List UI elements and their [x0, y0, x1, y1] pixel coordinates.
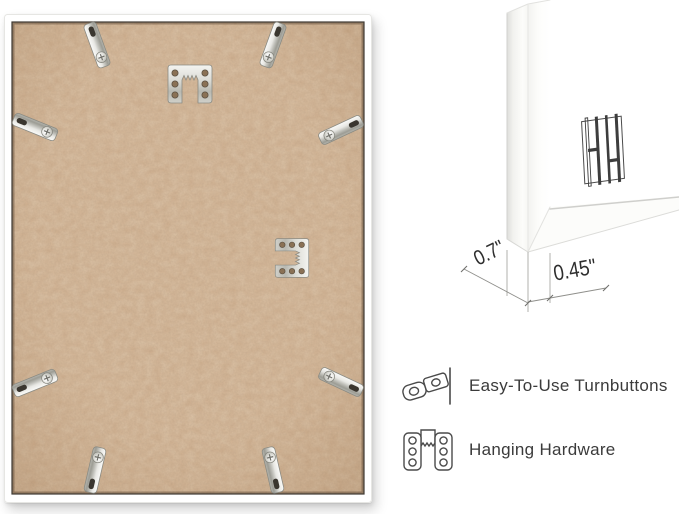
frame-back-svg	[4, 14, 372, 503]
product-image: 0.7" 0.45" Easy-To-Use Turnbuttons	[0, 0, 679, 514]
feature-hanging-hardware: Hanging Hardware	[400, 426, 616, 474]
mdf-board	[12, 22, 364, 494]
face-dimension-label: 0.45"	[552, 255, 598, 286]
frame-back-photo	[4, 14, 372, 503]
depth-dimension-label: 0.7"	[470, 236, 508, 271]
feature-turnbuttons: Easy-To-Use Turnbuttons	[400, 362, 668, 410]
turnbutton-icon	[400, 362, 456, 410]
frame-corner-svg: 0.7" 0.45"	[430, 0, 679, 330]
hanging-hardware-icon	[400, 426, 456, 474]
feature-hanging-hardware-label: Hanging Hardware	[469, 440, 616, 460]
frame-inner-panel	[550, 0, 679, 207]
frame-side-face	[507, 4, 528, 252]
feature-turnbuttons-label: Easy-To-Use Turnbuttons	[469, 376, 668, 396]
frame-corner-closeup: 0.7" 0.45"	[430, 0, 679, 330]
